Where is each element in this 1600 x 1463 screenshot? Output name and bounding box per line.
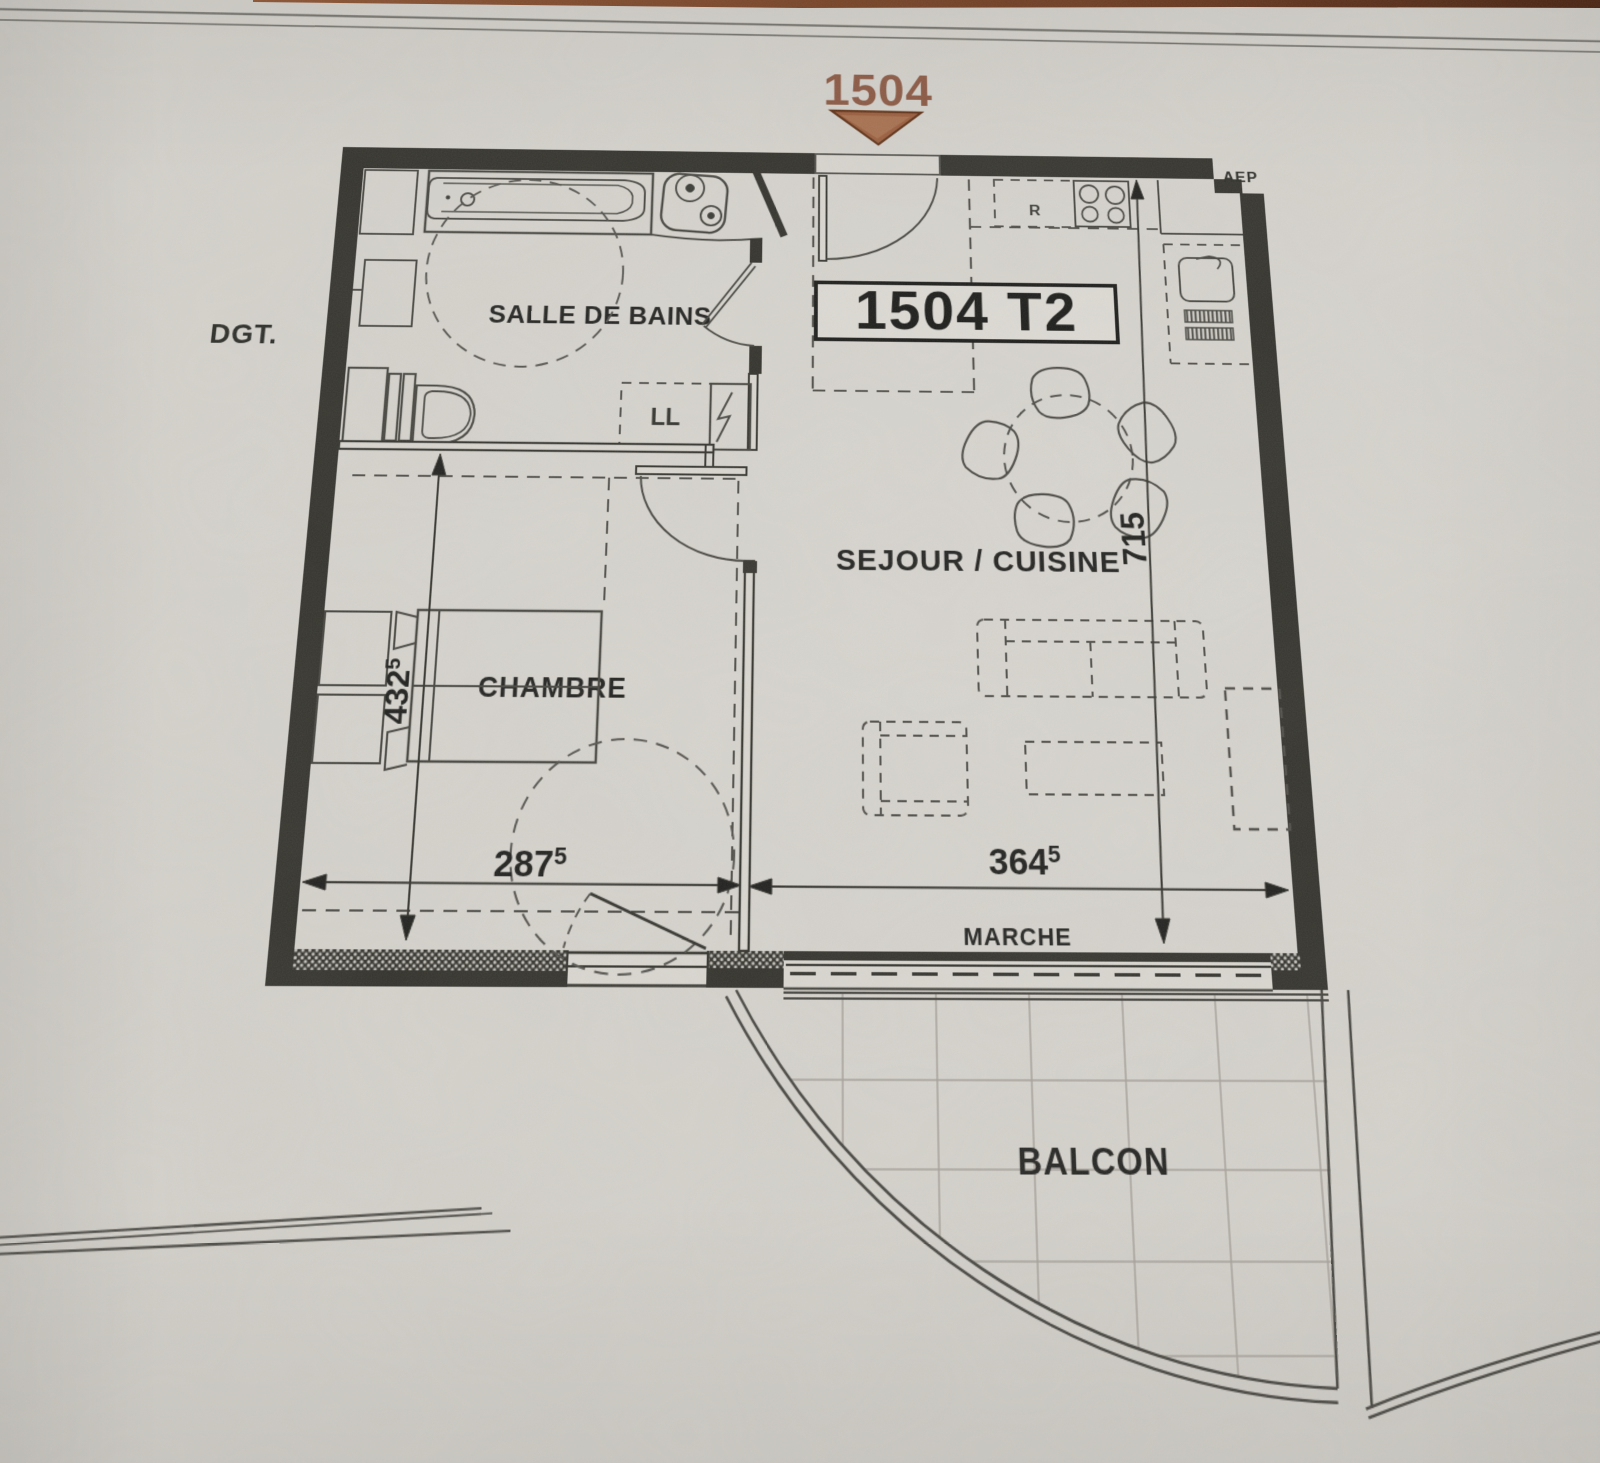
svg-text:4325: 4325: [376, 658, 417, 725]
svg-text:1504 T2: 1504 T2: [855, 280, 1079, 344]
svg-text:R: R: [1029, 202, 1041, 219]
svg-text:LL: LL: [650, 403, 681, 430]
svg-text:CHAMBRE: CHAMBRE: [477, 672, 627, 705]
svg-text:1504: 1504: [823, 65, 933, 115]
svg-text:DGT.: DGT.: [208, 319, 279, 349]
svg-text:3645: 3645: [988, 841, 1062, 884]
svg-text:2875: 2875: [492, 842, 567, 885]
svg-text:715: 715: [1114, 512, 1155, 566]
svg-text:SALLE DE BAINS: SALLE DE BAINS: [488, 301, 712, 332]
svg-text:SEJOUR / CUISINE: SEJOUR / CUISINE: [836, 542, 1121, 579]
svg-text:MARCHE: MARCHE: [963, 923, 1072, 952]
svg-text:AEP: AEP: [1222, 169, 1258, 186]
svg-text:BALCON: BALCON: [1017, 1140, 1171, 1183]
